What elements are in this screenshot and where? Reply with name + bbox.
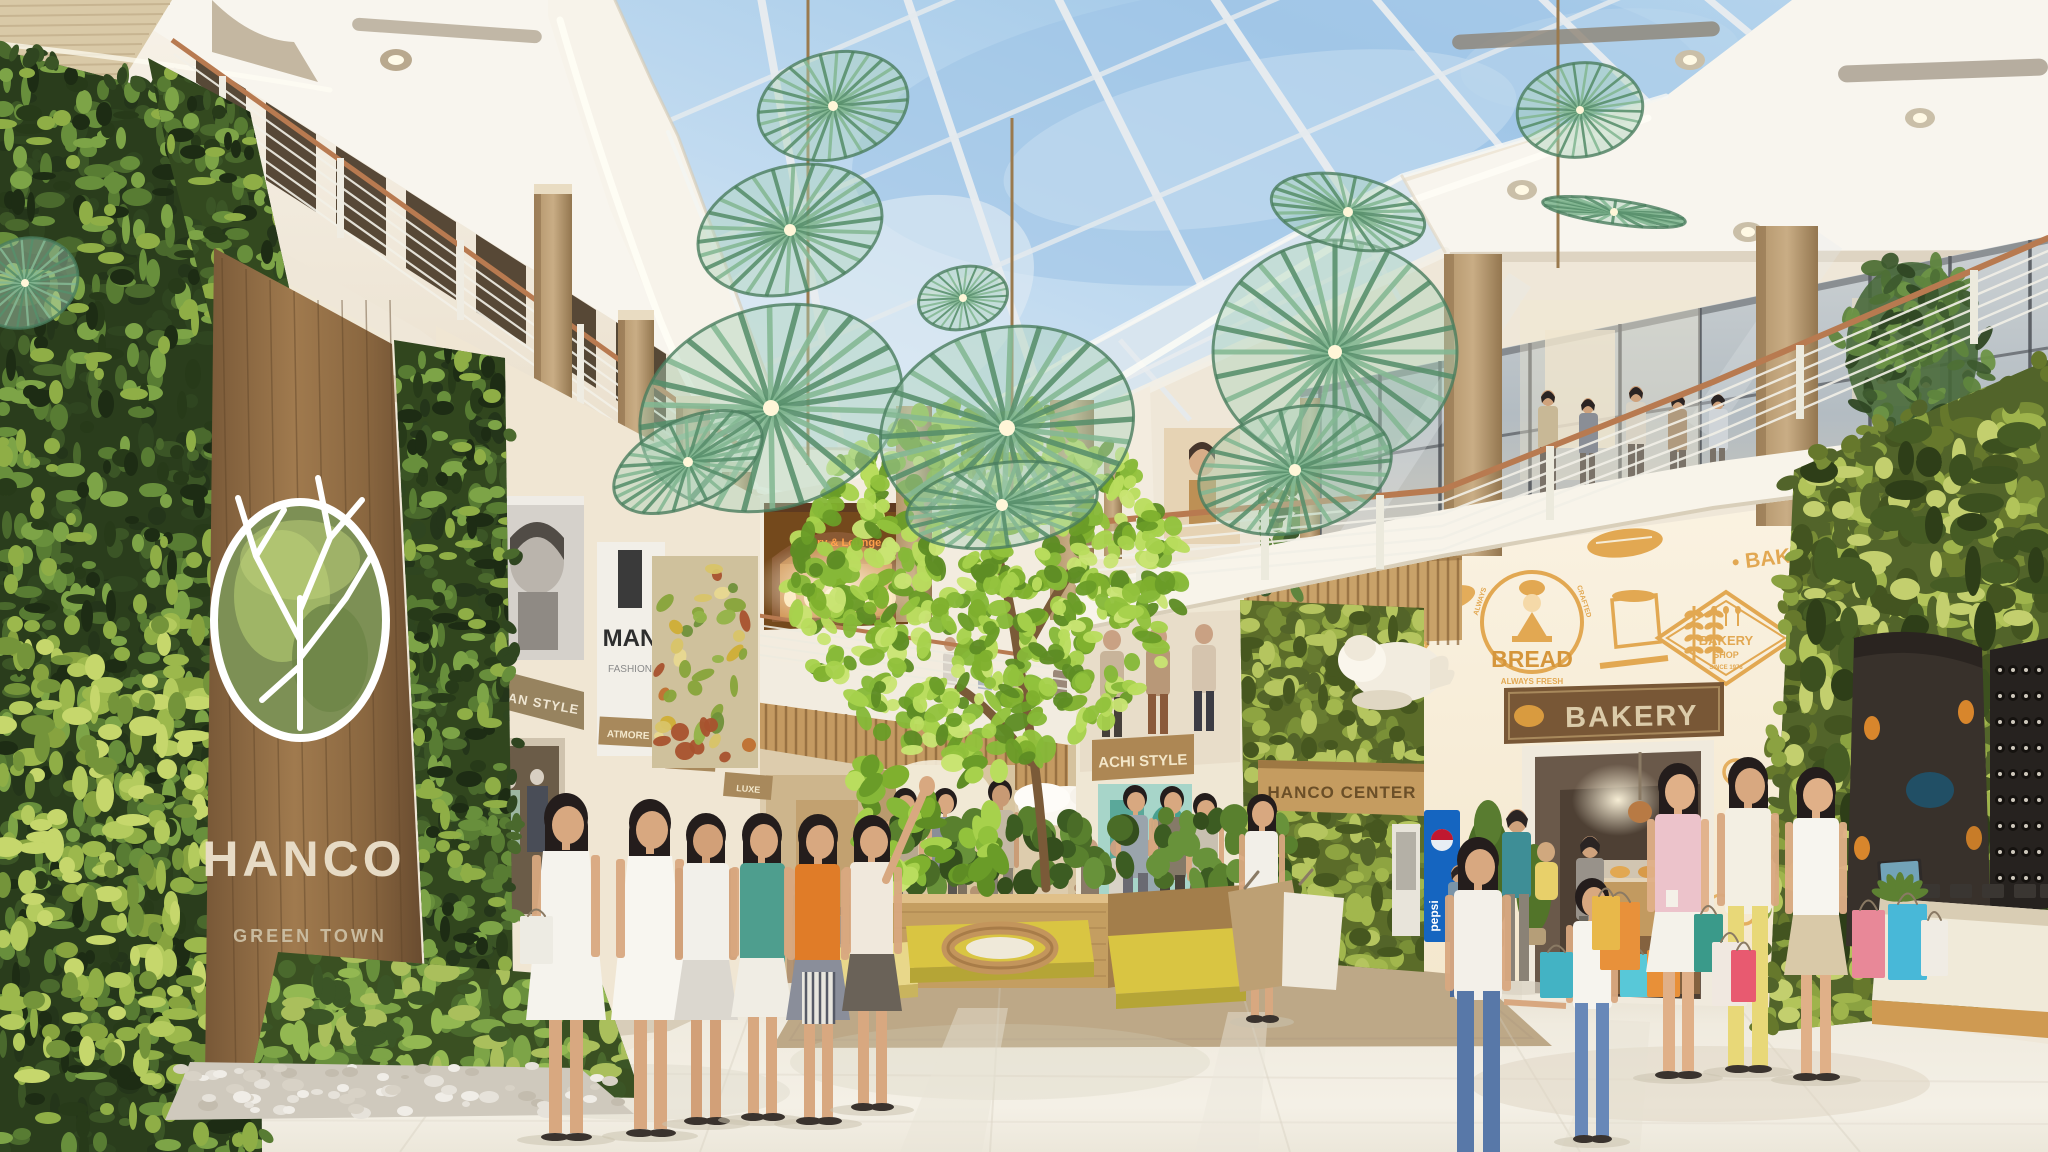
svg-text:ALWAYS FRESH: ALWAYS FRESH: [1501, 677, 1564, 686]
svg-text:SINCE 1978: SINCE 1978: [1709, 665, 1743, 671]
svg-text:HANCO: HANCO: [202, 831, 405, 887]
svg-text:pepsi: pepsi: [1427, 900, 1441, 931]
svg-text:BAKERY: BAKERY: [1699, 633, 1754, 648]
svg-text:BREAD: BREAD: [1491, 646, 1573, 672]
svg-text:LUXE: LUXE: [736, 783, 761, 795]
svg-text:BAKERY: BAKERY: [1565, 700, 1699, 734]
svg-text:ACHI STYLE: ACHI STYLE: [1098, 751, 1188, 771]
svg-text:HANCO CENTER: HANCO CENTER: [1268, 783, 1417, 802]
svg-text:GREEN TOWN: GREEN TOWN: [233, 926, 387, 946]
svg-text:SHOP: SHOP: [1713, 650, 1739, 660]
svg-text:ATMORE: ATMORE: [607, 729, 650, 742]
svg-text:FASHION: FASHION: [608, 664, 652, 675]
svg-text:MAN: MAN: [603, 625, 658, 652]
